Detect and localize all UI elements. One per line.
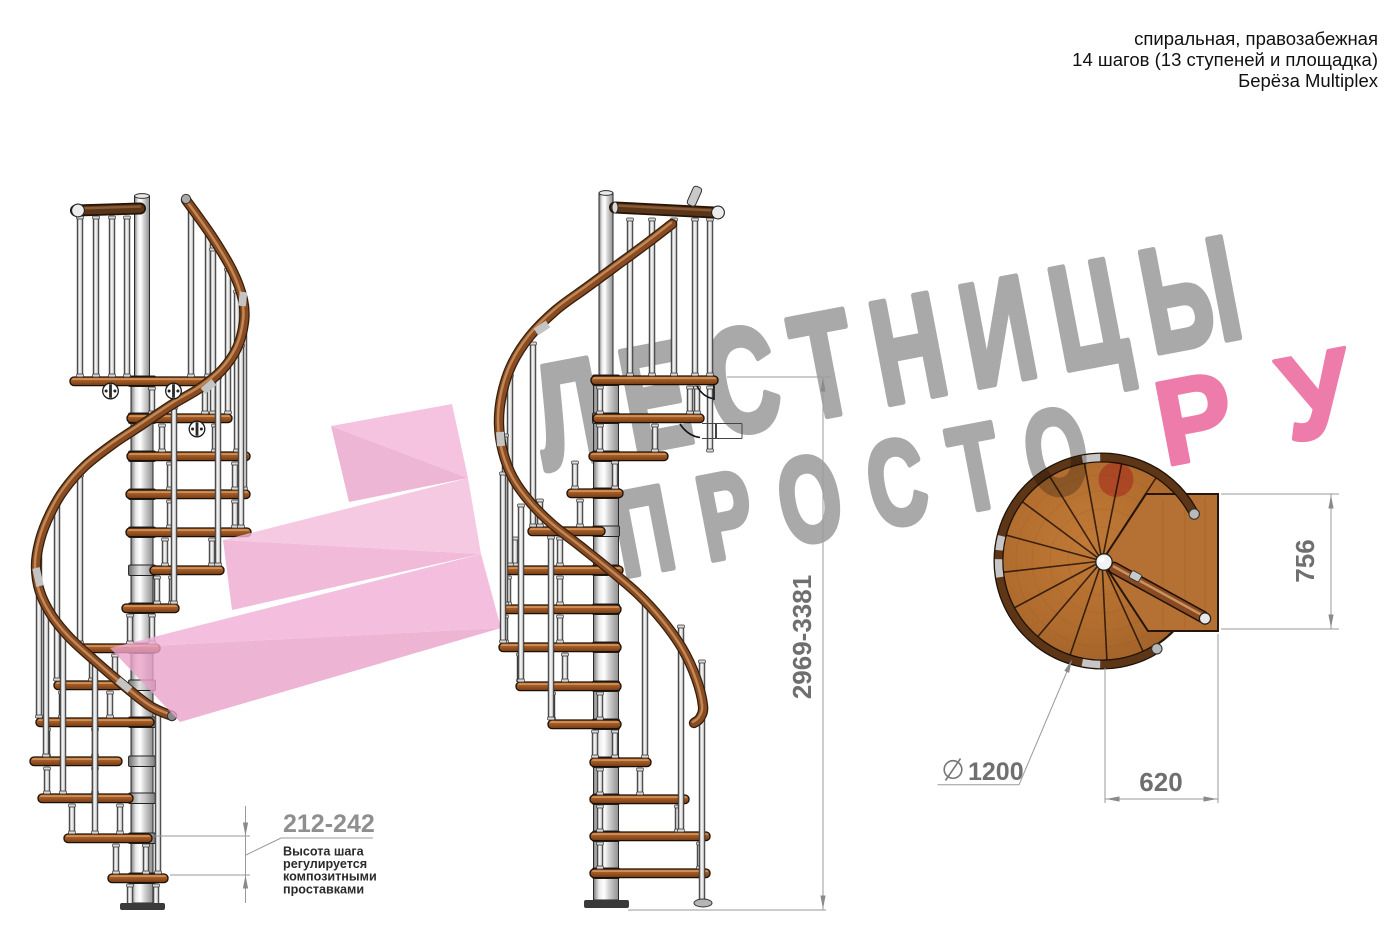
svg-text:620: 620 <box>1139 767 1182 797</box>
svg-text:2969-3381: 2969-3381 <box>787 575 817 699</box>
svg-text:1200: 1200 <box>968 758 1024 786</box>
svg-text:проставками: проставками <box>283 882 364 896</box>
svg-text:14 шагов (13 ступеней и площад: 14 шагов (13 ступеней и площадка) <box>1072 49 1378 70</box>
svg-text:спиральная, правозабежная: спиральная, правозабежная <box>1134 28 1378 49</box>
svg-text:212-242: 212-242 <box>283 810 375 838</box>
svg-text:756: 756 <box>1290 539 1320 582</box>
svg-text:Берёза Multiplex: Берёза Multiplex <box>1238 70 1379 91</box>
